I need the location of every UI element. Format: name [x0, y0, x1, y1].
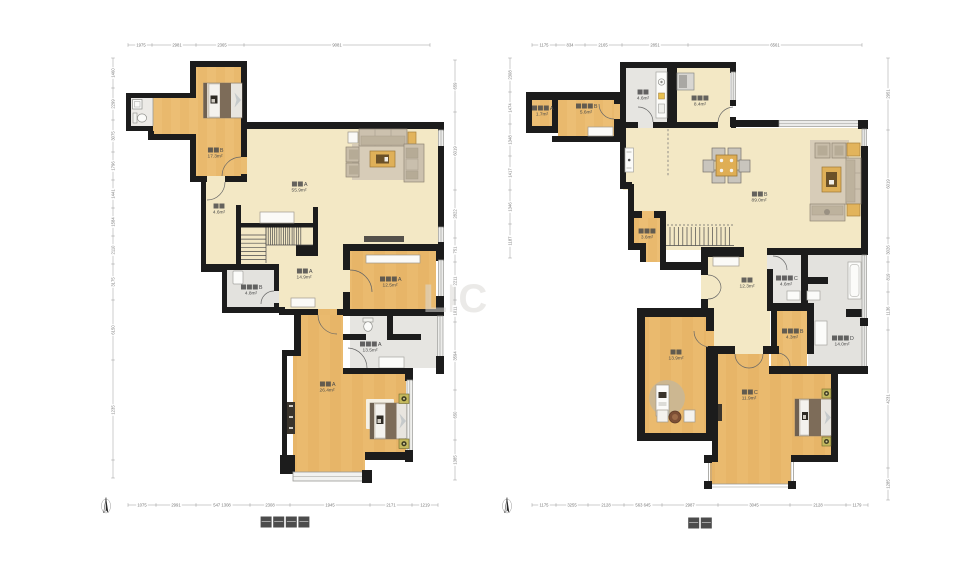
svg-text:B: B: [220, 148, 224, 154]
svg-text:9081: 9081: [332, 43, 342, 48]
svg-text:2987: 2987: [685, 503, 695, 508]
svg-text:1136: 1136: [885, 306, 890, 316]
svg-text:1219: 1219: [420, 503, 430, 508]
svg-text:2951: 2951: [885, 89, 890, 99]
svg-text:1346: 1346: [507, 202, 512, 212]
svg-text:3.6m²: 3.6m²: [641, 235, 654, 241]
svg-text:4.6m²: 4.6m²: [780, 282, 793, 288]
svg-text:2981: 2981: [172, 43, 182, 48]
svg-text:650: 650: [452, 411, 457, 419]
svg-text:2822: 2822: [452, 209, 457, 219]
svg-text:2171: 2171: [386, 503, 396, 508]
svg-text:8.4m²: 8.4m²: [694, 102, 707, 108]
svg-text:1175: 1175: [539, 43, 549, 48]
svg-text:2110: 2110: [110, 245, 115, 255]
svg-text:26.4m²: 26.4m²: [320, 388, 335, 394]
svg-text:6019: 6019: [885, 179, 890, 189]
svg-text:3594: 3594: [452, 351, 457, 361]
svg-text:1460: 1460: [110, 68, 115, 78]
svg-text:B: B: [800, 329, 804, 335]
svg-text:13.5m²: 13.5m²: [363, 348, 378, 354]
svg-text:1348: 1348: [507, 135, 512, 145]
svg-text:5.6m²: 5.6m²: [580, 110, 593, 116]
svg-text:2851: 2851: [650, 43, 660, 48]
svg-text:1385: 1385: [452, 455, 457, 465]
svg-text:1945: 1945: [325, 503, 335, 508]
svg-text:12.5m²: 12.5m²: [383, 283, 398, 289]
svg-text:1235: 1235: [110, 405, 115, 415]
svg-text:819: 819: [885, 273, 890, 281]
svg-text:13.9m²: 13.9m²: [669, 356, 684, 362]
svg-text:1584: 1584: [110, 217, 115, 227]
svg-text:1285: 1285: [885, 479, 890, 489]
svg-text:4.6m²: 4.6m²: [637, 96, 650, 102]
svg-text:A: A: [550, 106, 554, 112]
svg-text:A: A: [378, 342, 382, 348]
svg-text:3075: 3075: [110, 131, 115, 141]
svg-text:1179: 1179: [852, 503, 862, 508]
svg-text:B: B: [259, 285, 263, 291]
svg-text:6561: 6561: [770, 43, 780, 48]
svg-text:547 1308: 547 1308: [213, 503, 231, 508]
svg-text:834: 834: [567, 43, 575, 48]
svg-text:1187: 1187: [507, 236, 512, 246]
svg-text:659: 659: [452, 82, 457, 90]
svg-text:2991: 2991: [171, 503, 181, 508]
svg-text:2299: 2299: [110, 99, 115, 109]
svg-text:11.9m²: 11.9m²: [742, 396, 757, 402]
svg-text:55.9m²: 55.9m²: [292, 188, 307, 194]
svg-text:A: A: [309, 269, 313, 275]
svg-text:14.0m²: 14.0m²: [835, 342, 850, 348]
svg-text:1796: 1796: [110, 161, 115, 171]
svg-text:C: C: [754, 390, 758, 396]
svg-text:1175: 1175: [539, 503, 549, 508]
svg-text:2128: 2128: [601, 503, 611, 508]
svg-text:1075: 1075: [137, 503, 147, 508]
svg-text:D: D: [850, 336, 854, 342]
svg-text:2308: 2308: [265, 503, 275, 508]
svg-text:1474: 1474: [507, 103, 512, 113]
svg-text:2365: 2365: [217, 43, 227, 48]
svg-text:4.8m²: 4.8m²: [245, 291, 258, 297]
svg-text:3255: 3255: [567, 503, 577, 508]
svg-text:17.3m²: 17.3m²: [208, 154, 223, 160]
svg-text:4.3m²: 4.3m²: [786, 335, 799, 341]
svg-text:6150: 6150: [110, 325, 115, 335]
svg-text:563 645: 563 645: [635, 503, 651, 508]
svg-text:1975: 1975: [136, 43, 146, 48]
svg-text:1011: 1011: [452, 306, 457, 316]
svg-text:89.0m²: 89.0m²: [752, 198, 767, 204]
svg-text:3175: 3175: [110, 277, 115, 287]
svg-text:6019: 6019: [452, 146, 457, 156]
svg-text:4231: 4231: [885, 394, 890, 404]
svg-text:A: A: [398, 277, 402, 283]
svg-text:4.6m²: 4.6m²: [213, 210, 226, 216]
svg-text:1.7m²: 1.7m²: [536, 112, 549, 118]
svg-text:A: A: [304, 182, 308, 188]
svg-text:2128: 2128: [813, 503, 823, 508]
svg-text:1441: 1441: [110, 189, 115, 199]
svg-text:C: C: [794, 276, 798, 282]
svg-text:12.3m²: 12.3m²: [740, 284, 755, 290]
svg-text:3026: 3026: [885, 245, 890, 255]
svg-text:2211: 2211: [452, 276, 457, 286]
svg-text:B: B: [594, 104, 598, 110]
svg-text:1417: 1417: [507, 168, 512, 178]
svg-text:751: 751: [452, 246, 457, 254]
svg-text:2165: 2165: [598, 43, 608, 48]
svg-text:2308: 2308: [507, 70, 512, 80]
svg-text:3045: 3045: [749, 503, 759, 508]
svg-text:14.9m²: 14.9m²: [297, 275, 312, 281]
svg-text:B: B: [764, 192, 768, 198]
svg-text:A: A: [332, 382, 336, 388]
